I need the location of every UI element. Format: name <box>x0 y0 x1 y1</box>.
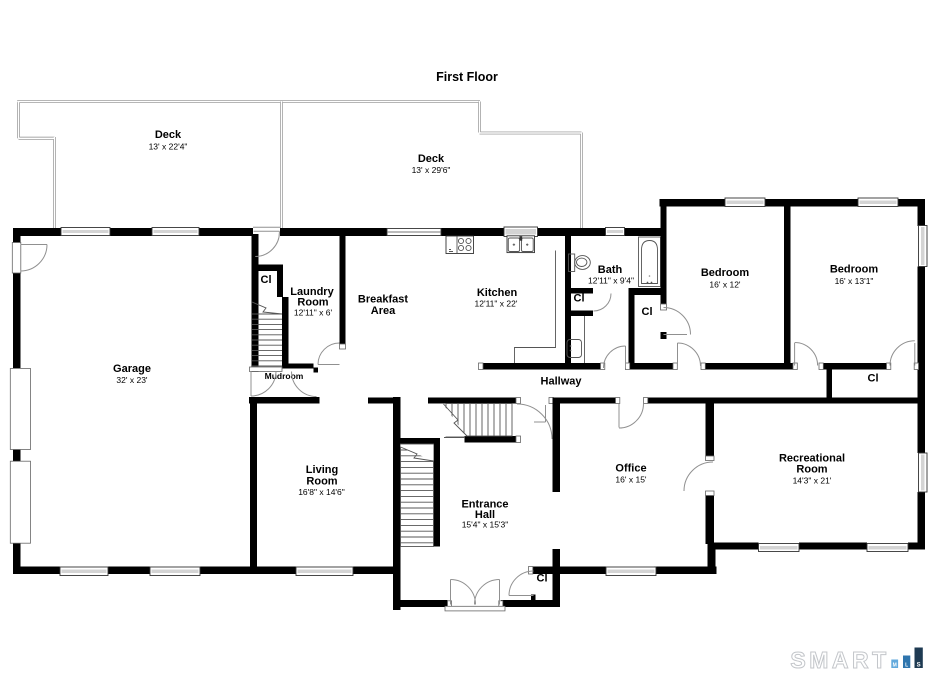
svg-text:First Floor: First Floor <box>436 70 498 84</box>
svg-text:Bath: Bath <box>598 264 623 276</box>
svg-text:13' x 29'6": 13' x 29'6" <box>412 165 451 175</box>
svg-text:32' x 23': 32' x 23' <box>116 375 148 385</box>
svg-text:16'8" x 14'6": 16'8" x 14'6" <box>298 487 345 497</box>
svg-text:Deck: Deck <box>418 153 445 165</box>
svg-text:Cl: Cl <box>868 373 879 385</box>
svg-text:Breakfast: Breakfast <box>358 294 408 306</box>
svg-text:Cl: Cl <box>537 573 548 585</box>
svg-text:Bedroom: Bedroom <box>701 267 750 279</box>
svg-text:Room: Room <box>796 464 827 476</box>
svg-text:12'11" x 6': 12'11" x 6' <box>294 308 333 318</box>
svg-text:14'3" x 21': 14'3" x 21' <box>793 476 832 486</box>
svg-text:Cl: Cl <box>261 274 272 286</box>
svg-text:SMART: SMART <box>790 647 889 673</box>
svg-text:S: S <box>917 663 921 669</box>
svg-text:Room: Room <box>306 476 337 488</box>
svg-text:12'11" x 9'4": 12'11" x 9'4" <box>588 276 634 286</box>
svg-text:Bedroom: Bedroom <box>830 264 879 276</box>
svg-text:16' x 12': 16' x 12' <box>709 280 741 290</box>
svg-text:15'4" x 15'3": 15'4" x 15'3" <box>462 520 509 530</box>
svg-text:Hallway: Hallway <box>541 376 583 388</box>
svg-text:16' x 15': 16' x 15' <box>615 475 647 485</box>
svg-text:Kitchen: Kitchen <box>477 287 518 299</box>
svg-text:Deck: Deck <box>155 129 182 141</box>
svg-text:Area: Area <box>371 305 396 317</box>
svg-text:12'11" x 22': 12'11" x 22' <box>475 299 518 309</box>
svg-text:Cl: Cl <box>574 293 585 305</box>
svg-text:Office: Office <box>615 463 646 475</box>
svg-text:L: L <box>905 663 908 669</box>
svg-text:Mudroom: Mudroom <box>265 371 304 381</box>
svg-text:Garage: Garage <box>113 363 151 375</box>
svg-text:13' x 22'4": 13' x 22'4" <box>149 142 188 152</box>
svg-text:M: M <box>893 663 897 669</box>
svg-text:16' x 13'1": 16' x 13'1" <box>835 276 874 286</box>
svg-text:Cl: Cl <box>642 306 653 318</box>
svg-text:Living: Living <box>306 464 338 476</box>
